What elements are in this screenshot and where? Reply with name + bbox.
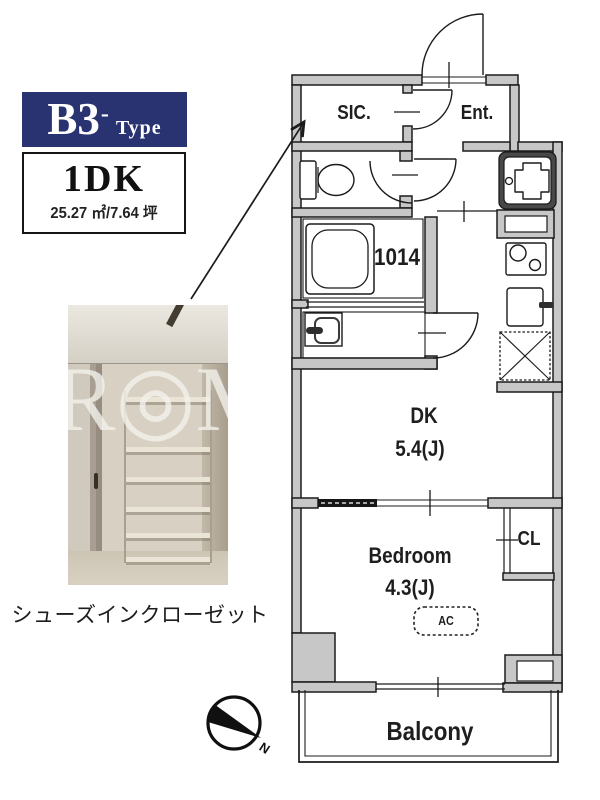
stove-icon: [506, 243, 546, 275]
floorplan-page: B3 - Type 1DK 25.27 ㎡/7.64 坪 R◎M シューズインク…: [0, 0, 600, 800]
toilet-icon: [300, 161, 354, 199]
kitchen-upper-cabinet: [505, 216, 547, 232]
room-size-dk: 5.4(J): [395, 438, 444, 460]
kitchen-sink-icon: [499, 152, 556, 209]
hall-door-arc: [414, 159, 456, 201]
room-label-cl: CL: [518, 529, 541, 549]
room-label-dk: DK: [410, 405, 437, 427]
bathtub-icon: [306, 224, 374, 294]
sic-door-arc: [413, 90, 452, 129]
room-label-bath-1014: 1014: [374, 246, 420, 270]
cabinet-icon: [507, 288, 553, 326]
refrigerator-space-icon: [500, 332, 550, 380]
room-label-bedroom: Bedroom: [368, 545, 451, 567]
shutter-box: [517, 661, 553, 681]
room-label-ac: AC: [438, 615, 454, 628]
room-label-ent: Ent.: [461, 103, 493, 123]
floorplan-drawing: N: [0, 0, 600, 800]
room-label-balcony: Balcony: [387, 718, 474, 744]
compass-north-icon: N: [208, 697, 273, 757]
room-label-sic: SIC.: [337, 103, 370, 123]
washroom-door-arc: [433, 313, 478, 358]
room-size-bedroom: 4.3(J): [385, 577, 434, 599]
callout-arrow-icon: [191, 122, 304, 299]
sliding-door: [318, 499, 377, 507]
compass-north-label: N: [257, 739, 273, 757]
washbasin-icon: [305, 313, 342, 346]
entrance-door-arc: [422, 14, 483, 75]
